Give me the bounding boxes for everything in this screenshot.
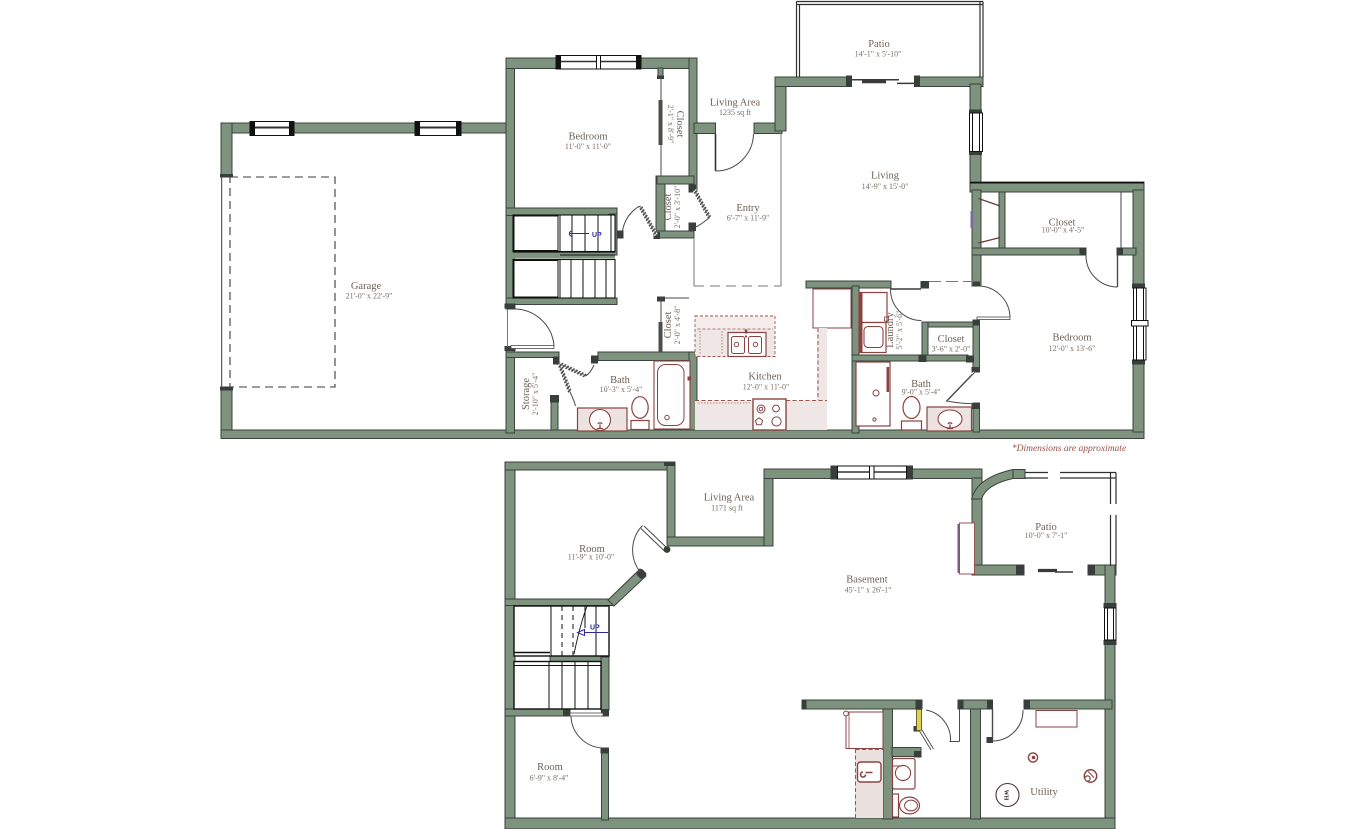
svg-text:Living Area: Living Area bbox=[704, 493, 755, 504]
svg-text:WH: WH bbox=[1003, 790, 1009, 801]
svg-text:6'-9" x 8'-4": 6'-9" x 8'-4" bbox=[530, 774, 569, 783]
svg-text:9'-0" x 5'-4": 9'-0" x 5'-4" bbox=[902, 387, 941, 396]
svg-text:12'-0" x 13'-6": 12'-0" x 13'-6" bbox=[1049, 344, 1096, 353]
svg-text:Room: Room bbox=[537, 762, 563, 773]
svg-text:6'-7" x 11'-9": 6'-7" x 11'-9" bbox=[727, 214, 769, 223]
svg-text:Living: Living bbox=[871, 171, 900, 182]
svg-text:14'-1" x 5'-10": 14'-1" x 5'-10" bbox=[855, 50, 902, 59]
svg-text:5'-2" x 5'-6": 5'-2" x 5'-6" bbox=[895, 311, 904, 350]
svg-text:*Dimensions are approximate: *Dimensions are approximate bbox=[1012, 444, 1126, 454]
svg-text:Entry: Entry bbox=[736, 203, 760, 214]
svg-text:10'-0" x 4'-5": 10'-0" x 4'-5" bbox=[1042, 225, 1085, 234]
svg-text:45'-1" x 26'-1": 45'-1" x 26'-1" bbox=[845, 586, 892, 595]
svg-text:10'-3" x 5'-4": 10'-3" x 5'-4" bbox=[600, 385, 643, 394]
svg-text:3'-6" x 2'-0": 3'-6" x 2'-0" bbox=[932, 345, 971, 354]
svg-text:Patio: Patio bbox=[868, 39, 890, 50]
svg-text:14'-9" x 15'-0": 14'-9" x 15'-0" bbox=[862, 182, 909, 191]
svg-text:Kitchen: Kitchen bbox=[748, 372, 782, 383]
svg-text:2'-0" x 3'-10": 2'-0" x 3'-10" bbox=[673, 186, 682, 229]
svg-text:UP: UP bbox=[592, 232, 602, 239]
svg-text:2'-0" x 4'-8": 2'-0" x 4'-8" bbox=[673, 306, 682, 345]
svg-text:Garage: Garage bbox=[351, 281, 382, 292]
svg-text:Living Area: Living Area bbox=[710, 98, 761, 109]
svg-text:UP: UP bbox=[590, 625, 600, 632]
svg-text:Basement: Basement bbox=[846, 575, 887, 586]
svg-text:1235 sq ft: 1235 sq ft bbox=[719, 108, 752, 117]
svg-text:11'-0" x 11'-0": 11'-0" x 11'-0" bbox=[565, 142, 611, 151]
svg-text:1171 sq ft: 1171 sq ft bbox=[711, 504, 743, 513]
svg-text:12'-0" x 11'-0": 12'-0" x 11'-0" bbox=[743, 383, 789, 392]
svg-text:10'-0" x 7'-1": 10'-0" x 7'-1" bbox=[1025, 531, 1068, 540]
svg-text:Bedroom: Bedroom bbox=[568, 132, 607, 143]
svg-text:2'-1" x 8'-9": 2'-1" x 8'-9" bbox=[666, 105, 675, 144]
svg-text:Bedroom: Bedroom bbox=[1052, 333, 1091, 344]
svg-text:Utility: Utility bbox=[1030, 787, 1058, 798]
svg-text:2'-10" x 5'-4": 2'-10" x 5'-4" bbox=[531, 373, 540, 416]
svg-text:21'-0" x 22'-9": 21'-0" x 22'-9" bbox=[346, 292, 393, 301]
svg-text:Closet: Closet bbox=[938, 334, 965, 345]
svg-text:11'-9" x 10'-0": 11'-9" x 10'-0" bbox=[568, 553, 614, 562]
